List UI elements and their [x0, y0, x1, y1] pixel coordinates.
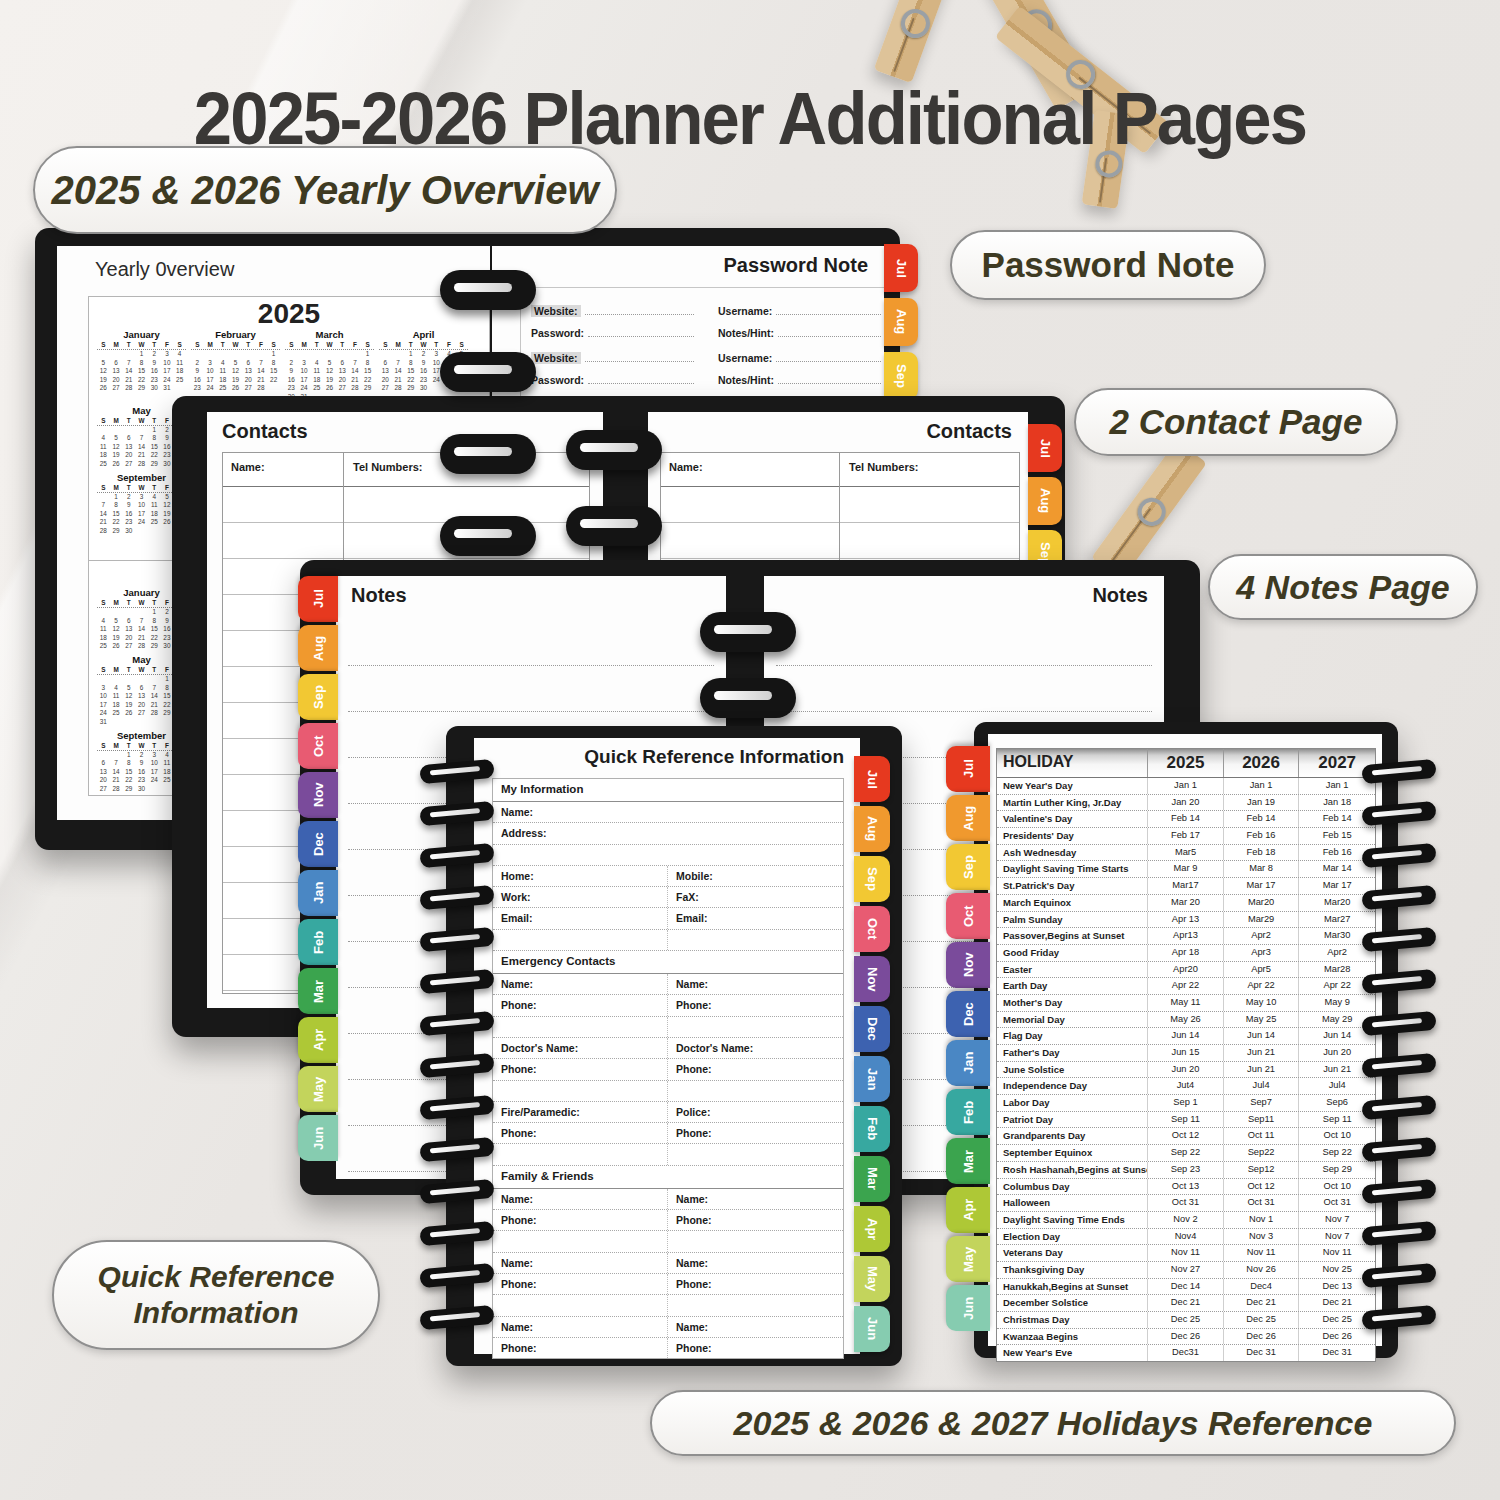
- day-number: 9: [122, 501, 135, 510]
- day-letter: S: [97, 340, 110, 349]
- day-number: 18: [110, 701, 123, 710]
- quick-reference-row: Phone: Phone:: [493, 1210, 843, 1231]
- day-number: [135, 527, 148, 536]
- day-number: 27: [122, 642, 135, 651]
- holiday-row: Thanksgiving Day Nov 27 Nov 26 Nov 25: [997, 1262, 1375, 1279]
- day-number: 12: [97, 367, 110, 376]
- day-number: 14: [148, 692, 161, 701]
- holiday-row: New Year's Eve Dec31 Dec 31 Dec 31: [997, 1345, 1375, 1361]
- month-tab: Dec: [854, 1006, 890, 1052]
- day-number: [349, 350, 362, 359]
- day-number: 29: [110, 527, 123, 536]
- day-number: 10: [135, 501, 148, 510]
- quick-reference-row: My Information: [493, 779, 843, 802]
- day-number: 28: [255, 384, 268, 393]
- day-number: 23: [135, 776, 148, 785]
- day-number: 7: [392, 359, 405, 368]
- day-number: 25: [310, 384, 323, 393]
- day-letter: M: [110, 483, 123, 492]
- holiday-row: Earth Day Apr 22 Apr 22 Apr 22: [997, 978, 1375, 995]
- day-letter: T: [148, 416, 161, 425]
- day-number: 4: [97, 434, 110, 443]
- password-fields-box: Website: Username: Password: Notes/Hint:…: [520, 287, 884, 406]
- day-number: 3: [430, 350, 443, 359]
- day-number: [97, 751, 110, 760]
- day-number: 3: [204, 359, 217, 368]
- month-tab: Nov: [946, 942, 990, 988]
- day-number: 22: [404, 376, 417, 385]
- day-number: 2: [191, 359, 204, 368]
- holiday-row: Patriot Day Sep 11 Sep11 Sep 11: [997, 1112, 1375, 1129]
- day-number: 29: [361, 384, 374, 393]
- day-number: 22: [267, 376, 280, 385]
- month-tab: Jul: [946, 746, 990, 792]
- day-number: 24: [148, 776, 161, 785]
- day-number: 13: [242, 367, 255, 376]
- mini-month-dayheader: SMTWTFS: [379, 340, 468, 350]
- day-number: 22: [148, 451, 161, 460]
- day-number: 9: [135, 759, 148, 768]
- day-number: 3: [97, 684, 110, 693]
- mini-month-name: January: [97, 329, 186, 340]
- day-number: [110, 608, 123, 617]
- day-number: 18: [97, 634, 110, 643]
- day-number: 20: [336, 376, 349, 385]
- day-number: 19: [323, 376, 336, 385]
- day-letter: T: [148, 340, 161, 349]
- contacts-name-header: Name:: [669, 461, 703, 473]
- day-number: 12: [323, 367, 336, 376]
- day-letter: W: [135, 340, 148, 349]
- day-number: 7: [135, 434, 148, 443]
- quick-reference-row: [493, 1017, 843, 1038]
- day-letter: W: [135, 665, 148, 674]
- day-letter: F: [161, 340, 174, 349]
- website-field: Website:: [531, 304, 696, 317]
- day-number: [255, 350, 268, 359]
- day-number: [110, 426, 123, 435]
- day-number: [323, 350, 336, 359]
- month-tab: Mar: [298, 968, 338, 1014]
- write-line: [588, 373, 694, 384]
- day-number: 3: [135, 493, 148, 502]
- day-number: 29: [148, 460, 161, 469]
- day-number: 13: [336, 367, 349, 376]
- callout-quick-reference-line2: Information: [134, 1295, 299, 1331]
- day-number: 25: [216, 384, 229, 393]
- day-number: 13: [122, 625, 135, 634]
- day-number: [379, 350, 392, 359]
- quick-reference-row: [493, 930, 843, 951]
- day-number: 19: [110, 451, 123, 460]
- day-number: 19: [122, 701, 135, 710]
- website-field: Website:: [531, 351, 696, 364]
- username-field: Username:: [718, 304, 883, 317]
- month-tab: Feb: [854, 1106, 890, 1152]
- day-number: [430, 384, 443, 393]
- day-number: 9: [285, 367, 298, 376]
- month-tab: Jul: [1028, 424, 1062, 472]
- spiral-coil: [440, 516, 536, 556]
- day-number: [267, 384, 280, 393]
- day-number: 1: [122, 751, 135, 760]
- day-number: 22: [122, 776, 135, 785]
- month-tab: May: [298, 1066, 338, 1112]
- day-number: 21: [135, 451, 148, 460]
- day-number: [97, 608, 110, 617]
- day-number: 15: [404, 367, 417, 376]
- day-letter: M: [110, 416, 123, 425]
- month-tab: Sep: [854, 856, 890, 902]
- day-number: 6: [122, 434, 135, 443]
- month-tab: Jan: [298, 870, 338, 916]
- quick-reference-row: [493, 1144, 843, 1165]
- month-tab: Oct: [854, 906, 890, 952]
- day-number: [122, 608, 135, 617]
- holiday-rows: New Year's Day Jan 1 Jan 1 Jan 1 Martin …: [997, 778, 1375, 1361]
- day-number: [148, 718, 161, 727]
- day-number: 16: [148, 367, 161, 376]
- month-tab: Sep: [946, 844, 990, 890]
- mini-month-dayheader: SMTWTFS: [285, 340, 374, 350]
- write-line: [776, 351, 881, 362]
- callout-holidays-reference: 2025 & 2026 & 2027 Holidays Reference: [650, 1390, 1456, 1456]
- day-number: 20: [122, 451, 135, 460]
- month-tab: Oct: [946, 893, 990, 939]
- day-number: 21: [255, 376, 268, 385]
- callout-contact-page: 2 Contact Page: [1074, 388, 1398, 456]
- month-tab: May: [854, 1256, 890, 1302]
- day-number: 11: [110, 692, 123, 701]
- day-letter: S: [97, 416, 110, 425]
- write-line: [585, 304, 694, 315]
- spiral-coil: [700, 678, 796, 718]
- day-letter: T: [122, 340, 135, 349]
- day-number: [216, 350, 229, 359]
- month-tab: May: [946, 1236, 990, 1282]
- day-number: 1: [148, 608, 161, 617]
- day-number: [135, 608, 148, 617]
- day-number: 29: [148, 642, 161, 651]
- holiday-row: St.Patrick's Day Mar17 Mar 17 Mar 17: [997, 878, 1375, 895]
- day-number: 28: [135, 642, 148, 651]
- day-number: 15: [361, 367, 374, 376]
- spiral-coil: [440, 352, 536, 392]
- day-number: 2: [417, 350, 430, 359]
- day-letter: S: [191, 340, 204, 349]
- month-tab: Jun: [854, 1306, 890, 1352]
- day-number: 21: [349, 376, 362, 385]
- day-number: 14: [110, 768, 123, 777]
- day-letter: T: [122, 741, 135, 750]
- contacts-name-header: Name:: [231, 461, 265, 473]
- notes-hint-field: Notes/Hint:: [718, 326, 883, 339]
- day-number: 8: [135, 359, 148, 368]
- day-letter: T: [310, 340, 323, 349]
- day-number: 12: [229, 367, 242, 376]
- day-number: 11: [216, 367, 229, 376]
- day-number: [148, 675, 161, 684]
- quick-reference-row: [493, 1295, 843, 1316]
- day-letter: S: [361, 340, 374, 349]
- day-letter: F: [255, 340, 268, 349]
- day-number: 6: [135, 684, 148, 693]
- callout-password-note: Password Note: [950, 230, 1266, 300]
- day-number: 7: [349, 359, 362, 368]
- day-number: 30: [122, 527, 135, 536]
- day-number: 9: [417, 359, 430, 368]
- day-number: 11: [310, 367, 323, 376]
- day-number: 4: [173, 350, 186, 359]
- mini-month: January SMTWTFS 1234: [97, 329, 186, 402]
- month-tab: Jan: [854, 1056, 890, 1102]
- holiday-row: Labor Day Sep 1 Sep7 Sep6: [997, 1095, 1375, 1112]
- day-number: [148, 527, 161, 536]
- day-number: 28: [110, 785, 123, 794]
- day-letter: T: [216, 340, 229, 349]
- day-letter: S: [455, 340, 468, 349]
- day-number: 1: [110, 493, 123, 502]
- day-letter: T: [430, 340, 443, 349]
- day-number: 17: [204, 376, 217, 385]
- day-number: 15: [135, 367, 148, 376]
- day-number: 30: [417, 384, 430, 393]
- day-number: 18: [148, 510, 161, 519]
- quick-reference-row: [493, 1081, 843, 1102]
- write-line: [778, 373, 881, 384]
- day-number: 5: [122, 684, 135, 693]
- day-number: 14: [135, 443, 148, 452]
- quick-reference-row: Name: Name:: [493, 974, 843, 995]
- day-number: 19: [229, 376, 242, 385]
- holiday-row: Kwanzaa Begins Dec 26 Dec 26 Dec 26: [997, 1329, 1375, 1346]
- day-number: 14: [349, 367, 362, 376]
- username-field: Username:: [718, 351, 883, 364]
- day-letter: T: [122, 416, 135, 425]
- day-number: 21: [392, 376, 405, 385]
- day-number: 6: [336, 359, 349, 368]
- day-number: 3: [148, 751, 161, 760]
- password-block: Website: Username: Password: Notes/Hint:: [531, 351, 883, 386]
- day-number: 30: [135, 785, 148, 794]
- month-tab: Feb: [298, 919, 338, 965]
- day-number: 14: [135, 625, 148, 634]
- day-number: 13: [135, 692, 148, 701]
- day-number: 6: [110, 359, 123, 368]
- day-number: 15: [267, 367, 280, 376]
- holiday-row: June Solstice Jun 20 Jun 21 Jun 21: [997, 1062, 1375, 1079]
- day-number: 11: [173, 359, 186, 368]
- day-number: 25: [97, 642, 110, 651]
- day-number: [122, 675, 135, 684]
- day-letter: S: [97, 665, 110, 674]
- holiday-row: Hanukkah,Begins at Sunset Dec 14 Dec4 De…: [997, 1279, 1375, 1296]
- day-number: [135, 718, 148, 727]
- spiral-coil: [440, 434, 536, 474]
- day-number: 25: [97, 460, 110, 469]
- day-number: 3: [298, 359, 311, 368]
- holiday-row: September Equinox Sep 22 Sep22 Sep 22: [997, 1145, 1375, 1162]
- day-number: 25: [148, 518, 161, 527]
- holiday-row: Halloween Oct 31 Oct 31 Oct 31: [997, 1195, 1375, 1212]
- day-letter: W: [135, 416, 148, 425]
- password-field: Password:: [531, 373, 696, 386]
- day-number: [191, 350, 204, 359]
- day-number: 20: [110, 376, 123, 385]
- day-number: 27: [97, 785, 110, 794]
- day-letter: S: [267, 340, 280, 349]
- holiday-row: Flag Day Jun 14 Jun 14 Jun 14: [997, 1028, 1375, 1045]
- quick-reference-row: Fire/Paramedic: Police:: [493, 1102, 843, 1123]
- day-number: 27: [379, 384, 392, 393]
- write-line: [776, 304, 881, 315]
- contacts-title: Contacts: [222, 420, 308, 443]
- holiday-row: Election Day Nov4 Nov 3 Nov 7: [997, 1229, 1375, 1246]
- day-number: 13: [97, 768, 110, 777]
- day-number: [97, 493, 110, 502]
- day-number: 13: [379, 367, 392, 376]
- month-tab: Sep: [884, 352, 918, 400]
- day-number: 21: [122, 376, 135, 385]
- day-number: 27: [242, 384, 255, 393]
- day-number: 28: [148, 709, 161, 718]
- day-number: 6: [379, 359, 392, 368]
- day-number: [242, 350, 255, 359]
- holiday-row: Grandparents Day Oct 12 Oct 11 Oct 10: [997, 1128, 1375, 1145]
- day-letter: T: [148, 483, 161, 492]
- day-letter: T: [148, 598, 161, 607]
- day-number: [97, 426, 110, 435]
- day-number: 23: [417, 376, 430, 385]
- day-number: 16: [417, 367, 430, 376]
- holiday-row: Good Friday Apr 18 Apr3 Apr2: [997, 945, 1375, 962]
- day-number: 22: [148, 634, 161, 643]
- holiday-row: Daylight Saving Time Starts Mar 9 Mar 8 …: [997, 861, 1375, 878]
- holiday-page: HOLIDAY 2025 2026 2027 New Year's Day Ja…: [988, 734, 1382, 1346]
- day-number: 24: [97, 709, 110, 718]
- day-number: 7: [122, 359, 135, 368]
- day-number: 10: [298, 367, 311, 376]
- day-number: 23: [285, 384, 298, 393]
- mini-month: February SMTWTFS 1: [191, 329, 280, 402]
- spiral-coil: [566, 506, 662, 546]
- month-tab: Apr: [298, 1017, 338, 1063]
- day-number: 26: [122, 709, 135, 718]
- day-number: 20: [379, 376, 392, 385]
- day-number: 21: [97, 518, 110, 527]
- day-number: 17: [161, 367, 174, 376]
- day-number: 16: [135, 768, 148, 777]
- day-number: [298, 350, 311, 359]
- day-letter: T: [148, 665, 161, 674]
- holiday-row: Independence Day Jut4 Jul4 Jul4: [997, 1078, 1375, 1095]
- month-tab: Jul: [854, 756, 890, 802]
- day-number: [173, 384, 186, 393]
- day-number: 28: [135, 460, 148, 469]
- holiday-row: Daylight Saving Time Ends Nov 2 Nov 1 No…: [997, 1212, 1375, 1229]
- day-number: 1: [148, 426, 161, 435]
- contacts-tel-header: Tel Numbers:: [353, 461, 422, 473]
- day-number: [122, 350, 135, 359]
- holiday-row: Ash Wednesday Mar5 Feb 18 Feb 16: [997, 845, 1375, 862]
- quick-reference-tabs: JulAugSepOctNovDecJanFebMarAprMayJun: [854, 756, 890, 1356]
- day-number: 16: [285, 376, 298, 385]
- day-letter: M: [110, 598, 123, 607]
- day-number: [229, 350, 242, 359]
- day-number: 12: [110, 625, 123, 634]
- day-number: 27: [110, 384, 123, 393]
- day-number: 4: [97, 617, 110, 626]
- day-number: [148, 785, 161, 794]
- day-letter: F: [443, 340, 456, 349]
- month-tab: Apr: [946, 1187, 990, 1233]
- day-number: [97, 675, 110, 684]
- day-number: 17: [148, 768, 161, 777]
- month-tab: Apr: [854, 1206, 890, 1252]
- day-number: 1: [267, 350, 280, 359]
- notes-page-tabs: JulAugSepOctNovDecJanFebMarAprMayJun: [298, 576, 338, 1164]
- month-tab: Oct: [298, 723, 338, 769]
- day-number: 20: [242, 376, 255, 385]
- day-number: [310, 350, 323, 359]
- day-letter: T: [148, 741, 161, 750]
- day-number: 19: [97, 376, 110, 385]
- holiday-row: March Equinox Mar 20 Mar20 Mar20: [997, 895, 1375, 912]
- day-number: 18: [97, 451, 110, 460]
- day-number: 15: [110, 510, 123, 519]
- day-number: 26: [110, 642, 123, 651]
- day-number: 7: [135, 617, 148, 626]
- day-number: 5: [110, 434, 123, 443]
- day-number: [285, 350, 298, 359]
- quick-reference-row: Name: Name:: [493, 1317, 843, 1338]
- month-tab: Mar: [946, 1138, 990, 1184]
- day-number: 27: [336, 384, 349, 393]
- day-number: 21: [110, 776, 123, 785]
- holiday-table: HOLIDAY 2025 2026 2027 New Year's Day Ja…: [996, 748, 1376, 1362]
- day-number: 15: [148, 443, 161, 452]
- day-number: 6: [122, 617, 135, 626]
- day-number: 21: [148, 701, 161, 710]
- quick-reference-row: Name:: [493, 802, 843, 823]
- quick-reference-row: Email: Email:: [493, 908, 843, 929]
- day-number: [135, 426, 148, 435]
- callout-yearly-overview: 2025 & 2026 Yearly Overview: [33, 146, 617, 234]
- day-number: 29: [404, 384, 417, 393]
- mini-month-name: April: [379, 329, 468, 340]
- mini-month-name: February: [191, 329, 280, 340]
- month-tab: Jan: [946, 1040, 990, 1086]
- day-letter: M: [298, 340, 311, 349]
- day-number: 24: [135, 518, 148, 527]
- mini-month: March SMTWTFS 1: [285, 329, 374, 402]
- quick-reference-table: My Information Name: Address: Home: Mobi…: [492, 778, 844, 1359]
- day-number: 5: [97, 359, 110, 368]
- spiral-coil: [566, 430, 662, 470]
- holiday-row: Presidents' Day Feb 17 Feb 16 Feb 15: [997, 828, 1375, 845]
- day-number: 1: [135, 350, 148, 359]
- month-tab: Aug: [854, 806, 890, 852]
- day-number: 13: [122, 443, 135, 452]
- day-number: 2: [285, 359, 298, 368]
- mini-month-weeks: 1 2345678 9101112131415: [285, 350, 374, 402]
- notes-hint-field: Notes/Hint:: [718, 373, 883, 386]
- day-number: 22: [361, 376, 374, 385]
- day-number: 27: [122, 460, 135, 469]
- day-number: 25: [110, 709, 123, 718]
- password-field: Password:: [531, 326, 696, 339]
- password-block: Website: Username: Password: Notes/Hint:: [531, 304, 883, 339]
